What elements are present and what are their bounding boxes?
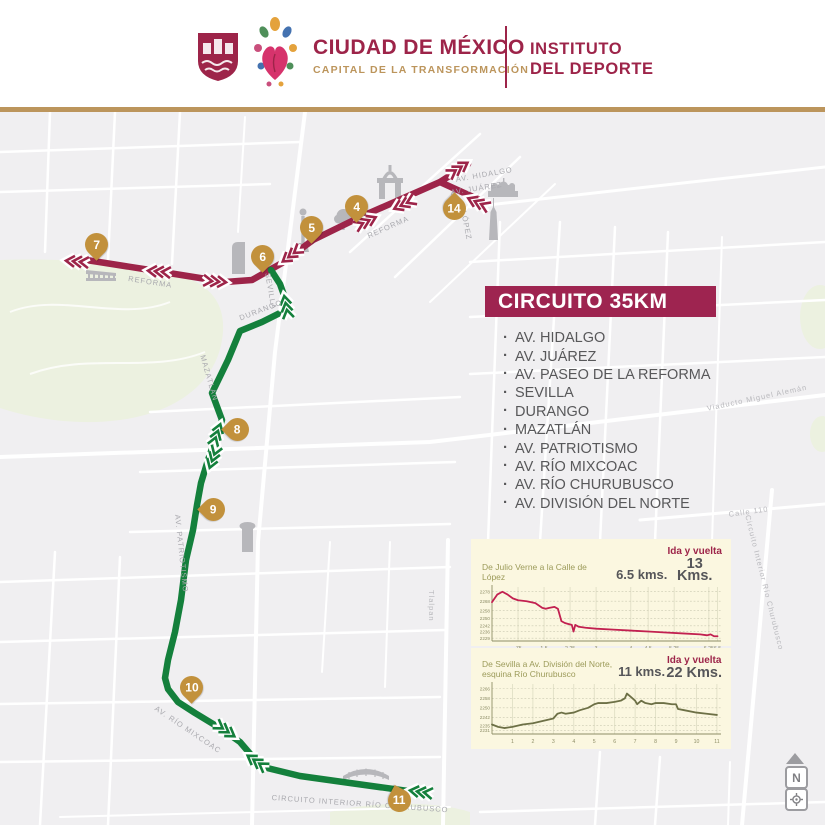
- street-label-tlalpan: Tlalpan: [427, 590, 436, 622]
- svg-text:2236: 2236: [480, 629, 491, 634]
- svg-text:1: 1: [511, 739, 514, 745]
- poster-page: CIUDAD DE MÉXICO CAPITAL DE LA TRANSFORM…: [0, 0, 825, 825]
- svg-text:2266: 2266: [480, 687, 491, 692]
- route-chevrons: [66, 255, 89, 268]
- institute-title: INSTITUTO DEL DEPORTE: [530, 39, 654, 79]
- route-chevrons: [245, 751, 270, 773]
- route-chevrons: [148, 265, 171, 278]
- svg-text:8: 8: [654, 739, 657, 745]
- street-list-item: ·AV. PATRIOTISMO: [503, 439, 711, 457]
- route-chevrons: [203, 275, 226, 288]
- svg-text:6: 6: [613, 739, 616, 745]
- stadium-icon: [343, 769, 389, 781]
- circuit-banner: CIRCUITO 35KM: [485, 286, 716, 317]
- cdmx-shield-logo: [196, 31, 240, 83]
- route-chevrons: [279, 295, 294, 319]
- street-list-item: ·SEVILLA: [503, 384, 711, 402]
- chart1-roundtrip-value: 13 Kms.: [667, 558, 722, 582]
- chart1-title: De Julio Verne a la Calle de López: [482, 562, 610, 582]
- monumento-revolucion-icon: [377, 165, 403, 199]
- svg-text:5: 5: [593, 739, 596, 745]
- chart1-distance: 6.5 kms.: [616, 567, 667, 582]
- elevation-card-1: De Julio Verne a la Calle de López 6.5 k…: [471, 539, 731, 646]
- chart2-title-line1: De Sevilla a Av. División del Norte,: [482, 659, 612, 669]
- street-list-item: ·AV. HIDALGO: [503, 329, 711, 347]
- brand-subtitle: CAPITAL DE LA TRANSFORMACIÓN: [313, 64, 529, 76]
- chart2-title-line2: esquina Río Churubusco: [482, 669, 576, 679]
- svg-text:2278: 2278: [480, 590, 491, 595]
- street-list-item: ·AV. RÍO CHURUBUSCO: [503, 476, 711, 494]
- chart2-roundtrip-value: 22 Kms.: [666, 667, 722, 679]
- svg-text:2: 2: [531, 739, 534, 745]
- circuit-street-list: ·AV. HIDALGO·AV. JUÁREZ·AV. PASEO DE LA …: [503, 329, 711, 513]
- chart2-plot: 1234567891011226622582250224222352231: [475, 680, 727, 746]
- street-list-item: ·AV. DIVISIÓN DEL NORTE: [503, 495, 711, 513]
- street-list-item: ·DURANGO: [503, 403, 711, 421]
- street-list-item: ·AV. PASEO DE LA REFORMA: [503, 366, 711, 384]
- torre-mayor-icon: [232, 242, 245, 274]
- chart2-distance: 11 kms.: [618, 664, 665, 679]
- svg-text:2231: 2231: [480, 728, 491, 733]
- svg-text:2250: 2250: [480, 616, 491, 621]
- north-arrow-icon: [786, 753, 804, 764]
- svg-text:2250: 2250: [480, 706, 491, 711]
- svg-text:4: 4: [572, 739, 575, 745]
- svg-text:11: 11: [714, 739, 719, 745]
- compass-button[interactable]: [785, 788, 808, 811]
- wtc-icon: [240, 522, 256, 552]
- route-chevrons: [409, 785, 433, 799]
- svg-text:2242: 2242: [480, 624, 491, 629]
- svg-text:7: 7: [634, 739, 637, 745]
- header: CIUDAD DE MÉXICO CAPITAL DE LA TRANSFORM…: [0, 0, 825, 107]
- street-list-item: ·AV. RÍO MIXCOAC: [503, 458, 711, 476]
- north-button[interactable]: N: [785, 766, 808, 789]
- svg-text:10: 10: [694, 739, 700, 745]
- corazon-emblem-icon: [249, 14, 301, 90]
- brand-title: CIUDAD DE MÉXICO: [313, 36, 529, 60]
- compass-icon: [790, 793, 803, 806]
- brand-block: CIUDAD DE MÉXICO CAPITAL DE LA TRANSFORM…: [313, 36, 529, 76]
- svg-text:2242: 2242: [480, 715, 491, 720]
- svg-text:2258: 2258: [480, 608, 491, 613]
- street-list-item: ·MAZATLÁN: [503, 421, 711, 439]
- chart1-plot: .751.52.25344.55.256.256.522782268225822…: [475, 583, 727, 653]
- svg-text:3: 3: [552, 739, 555, 745]
- svg-text:2258: 2258: [480, 696, 491, 701]
- elevation-card-2: De Sevilla a Av. División del Norte, esq…: [471, 648, 731, 749]
- svg-text:9: 9: [675, 739, 678, 745]
- svg-text:2229: 2229: [480, 636, 491, 641]
- header-divider: [505, 26, 507, 88]
- route-chevrons: [213, 719, 238, 741]
- street-list-item: ·AV. JUÁREZ: [503, 347, 711, 365]
- svg-text:2268: 2268: [480, 599, 491, 604]
